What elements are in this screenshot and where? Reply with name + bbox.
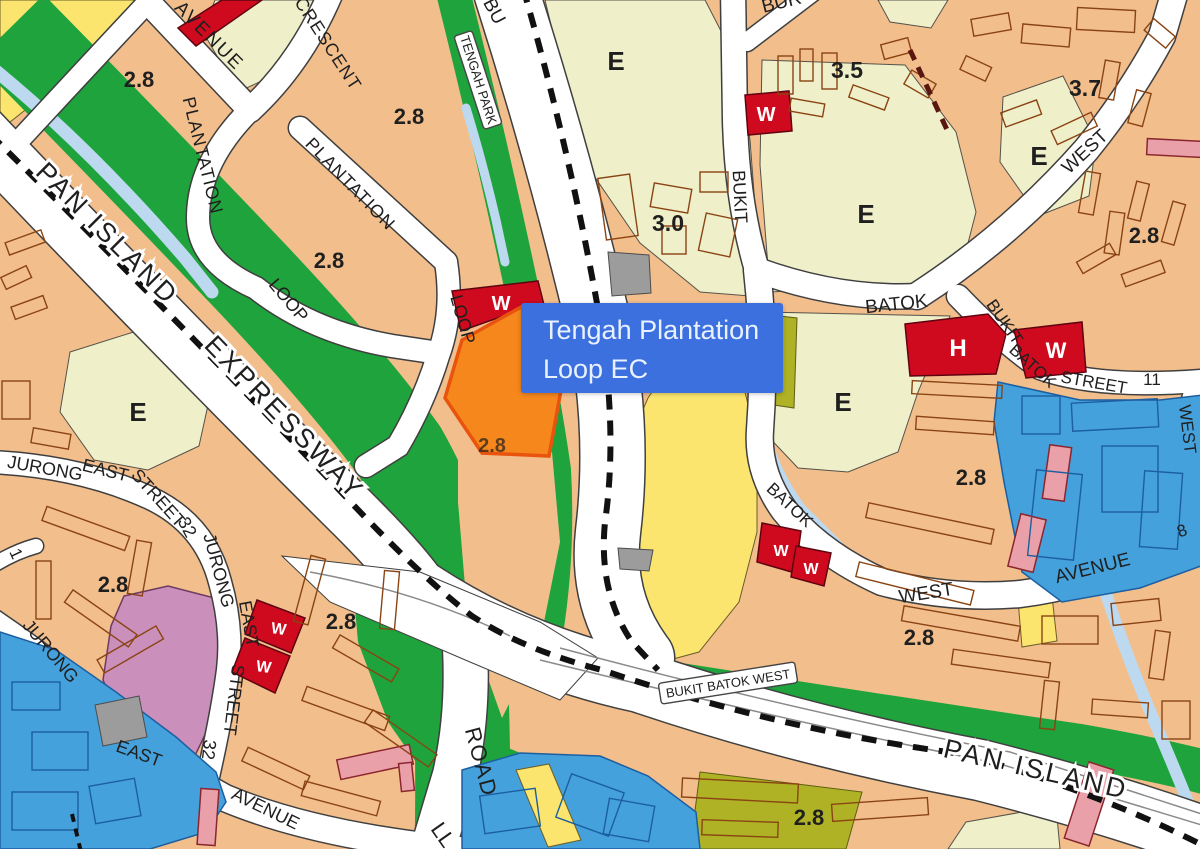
site-callout-line1: Tengah Plantation	[543, 311, 783, 350]
map-label-w: W	[1046, 338, 1067, 363]
map-label-w: W	[757, 104, 776, 126]
site-callout-line2: Loop EC	[543, 350, 783, 389]
map-label-3-5: 3.5	[831, 57, 863, 83]
map-label-h: H	[949, 335, 966, 362]
map-label-3-7: 3.7	[1069, 75, 1101, 101]
map-label-32: 32	[198, 739, 220, 761]
map-label-2-8: 2.8	[956, 465, 987, 490]
map-canvas: TENGAH PARKBUKIT BATOK WEST AVENUECRESCE…	[0, 0, 1200, 849]
map-label-2-8: 2.8	[794, 805, 825, 830]
site-callout[interactable]: Tengah Plantation Loop EC	[521, 303, 783, 393]
map-label-11: 11	[1143, 370, 1161, 389]
map-label-2-8: 2.8	[314, 248, 345, 273]
map-label-e: E	[129, 397, 146, 427]
map-label-w: W	[492, 293, 511, 315]
map-stage: TENGAH PARKBUKIT BATOK WEST AVENUECRESCE…	[0, 0, 1200, 849]
map-label-e: E	[607, 46, 624, 76]
map-label-e: E	[834, 387, 851, 417]
map-label-2-8: 2.8	[394, 104, 425, 129]
map-label-e: E	[857, 199, 874, 229]
map-label-w: W	[773, 543, 789, 560]
map-label-e: E	[1030, 141, 1047, 171]
map-label-2-8: 2.8	[478, 435, 506, 457]
map-label-2-8: 2.8	[124, 67, 155, 92]
map-label-bukit: BUKIT	[729, 170, 752, 224]
map-label-2-8: 2.8	[1129, 223, 1160, 248]
map-label-2-8: 2.8	[904, 625, 935, 650]
map-label-2-8: 2.8	[326, 609, 357, 634]
map-label-2-8: 2.8	[98, 572, 129, 597]
map-label-3-0: 3.0	[652, 210, 684, 236]
map-label-w: W	[803, 561, 819, 578]
